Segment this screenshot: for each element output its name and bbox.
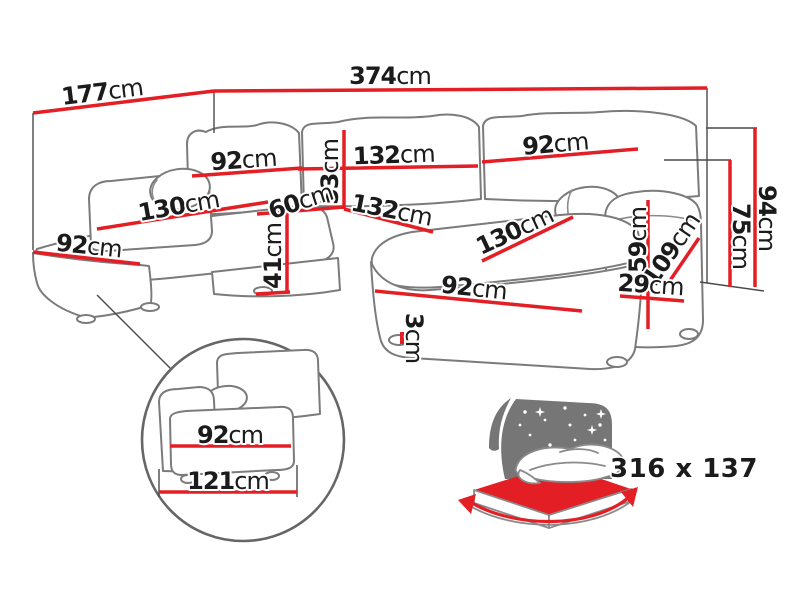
dim-label-94: 94cm <box>753 185 781 251</box>
dim-label-detail-121: 121cm <box>187 467 269 495</box>
dim-label-132-back: 132cm <box>352 140 435 171</box>
dim-label-177: 177cm <box>60 73 144 111</box>
detail-circle <box>97 295 344 541</box>
sofa-leg <box>77 315 95 323</box>
dim-line-374 <box>214 88 707 91</box>
furniture-dimension-diagram: 177cm 374cm 92cm 132cm 53cm 92cm 130cm 9… <box>0 0 800 600</box>
dim-label-374: 374cm <box>349 62 431 90</box>
dim-label-92-back-left: 92cm <box>210 144 278 177</box>
dim-label-75: 75cm <box>727 203 755 269</box>
sleeping-size-label: 316 x 137 <box>610 454 758 484</box>
dim-label-92-back-right: 92cm <box>521 127 589 161</box>
sofa-leg <box>680 329 698 339</box>
sofa-dimensions-diagram: 177cm 374cm 92cm 132cm 53cm 92cm 130cm 9… <box>0 0 800 600</box>
dim-label-41: 41cm <box>259 223 287 289</box>
arrowhead-left-icon <box>458 494 476 514</box>
dim-label-29: 29cm <box>617 269 685 302</box>
dim-label-3: 3cm <box>400 313 428 363</box>
dim-line-41-tick <box>256 292 290 294</box>
sleeping-function-icon: 316 x 137 <box>458 398 758 528</box>
dim-label-detail-92: 92cm <box>197 421 263 449</box>
sofa-leg <box>141 303 159 311</box>
sofa-leg <box>607 357 627 367</box>
